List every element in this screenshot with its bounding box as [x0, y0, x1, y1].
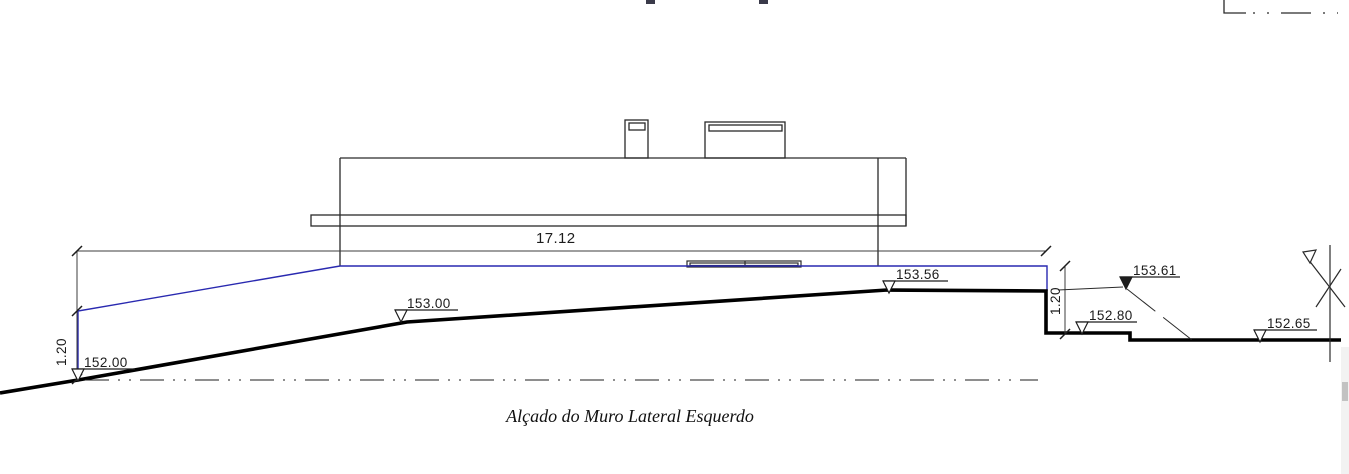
dimension-label-wall-height-right: 1.20 [1049, 287, 1063, 315]
vertical-scrollbar-track[interactable] [1341, 347, 1349, 474]
elevation-marker-153.61 [1120, 277, 1180, 289]
ground-profile-line [0, 290, 1341, 393]
roof-slab-band [311, 215, 906, 226]
cad-viewport: 17.12 1.20 1.20 152.00 153.00 153.56 153… [0, 0, 1349, 474]
elevation-label-152.00: 152.00 [84, 356, 128, 370]
drawing-title: Alçado do Muro Lateral Esquerdo [420, 406, 840, 427]
wall-top-line [78, 266, 1047, 381]
dimension-label-wall-height-left: 1.20 [55, 338, 69, 366]
elevation-label-153.56: 153.56 [896, 268, 940, 282]
vertical-scrollbar-thumb[interactable] [1342, 382, 1348, 401]
rooftop-structure [705, 122, 785, 158]
elevation-label-152.80: 152.80 [1089, 309, 1133, 323]
cropped-text-fragment [646, 0, 768, 4]
elevation-label-153.00: 153.00 [407, 297, 451, 311]
elevation-label-152.65: 152.65 [1267, 317, 1311, 331]
cropped-box-corner [1224, 0, 1246, 13]
dimension-label-wall-length: 17.12 [536, 231, 576, 246]
elevation-label-153.61: 153.61 [1133, 264, 1177, 278]
chimney-small [625, 120, 648, 158]
elevation-drawing [0, 0, 1349, 474]
building-outline [340, 158, 906, 266]
benchmark-symbol [1303, 245, 1345, 362]
